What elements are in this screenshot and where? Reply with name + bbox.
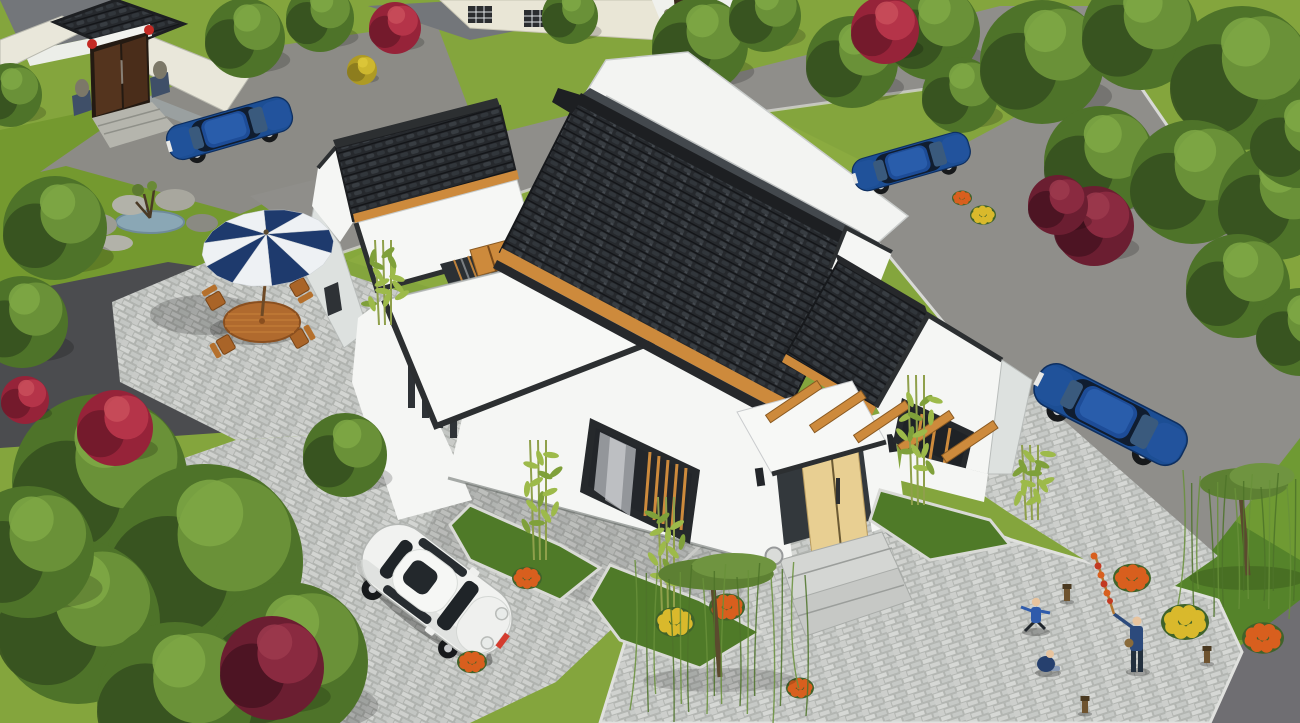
flower-bush (512, 567, 542, 590)
torso (1130, 626, 1143, 651)
torso (1037, 656, 1055, 672)
gate-door (94, 44, 122, 116)
pond-tree-leaves (132, 184, 144, 196)
flower-bush (970, 205, 996, 225)
flower-bush (1242, 622, 1284, 654)
flower-bush (952, 191, 972, 206)
leg (1131, 648, 1136, 672)
rendered-scene (0, 0, 1300, 723)
stone-lion (153, 61, 167, 79)
pond-tree-leaves (147, 181, 157, 191)
flower-bush (1113, 564, 1151, 593)
umbrella-hole (259, 318, 265, 324)
rock (186, 214, 218, 232)
stone-lion (75, 79, 89, 97)
flower-bush (1161, 604, 1209, 640)
red-lantern (87, 39, 97, 49)
red-lantern (144, 25, 154, 35)
head (1046, 650, 1054, 658)
scene-svg (0, 0, 1300, 723)
head (1133, 617, 1142, 626)
torso (1031, 607, 1041, 623)
door-handle (836, 478, 840, 504)
rock (155, 189, 195, 211)
leg (1138, 648, 1143, 672)
satchel (1125, 639, 1134, 648)
flower-bush (457, 651, 487, 674)
rock (112, 195, 148, 215)
gate-door (122, 36, 148, 108)
head (1032, 598, 1040, 606)
lattice-window (468, 6, 492, 23)
